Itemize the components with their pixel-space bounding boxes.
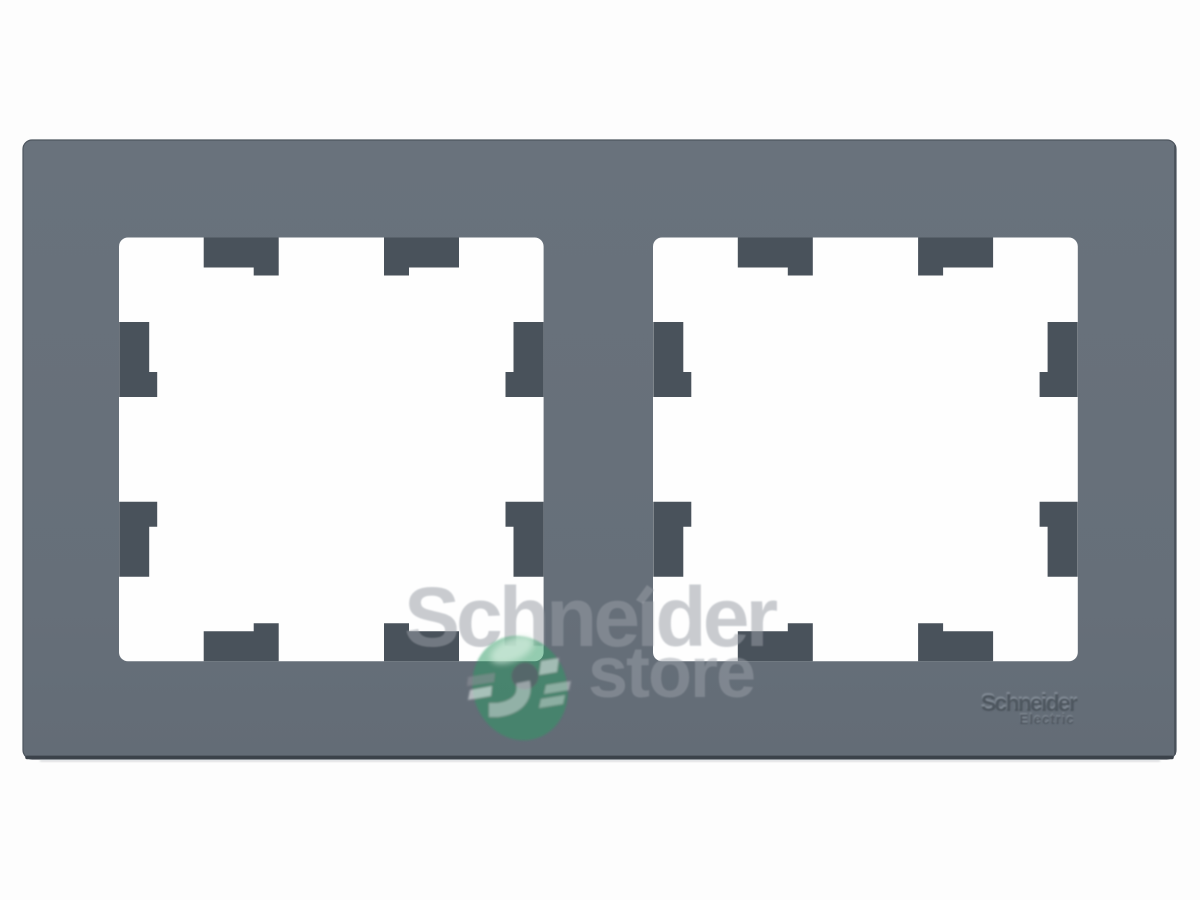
svg-text:Electric: Electric (1019, 712, 1074, 727)
svg-text:store: store (588, 633, 754, 713)
